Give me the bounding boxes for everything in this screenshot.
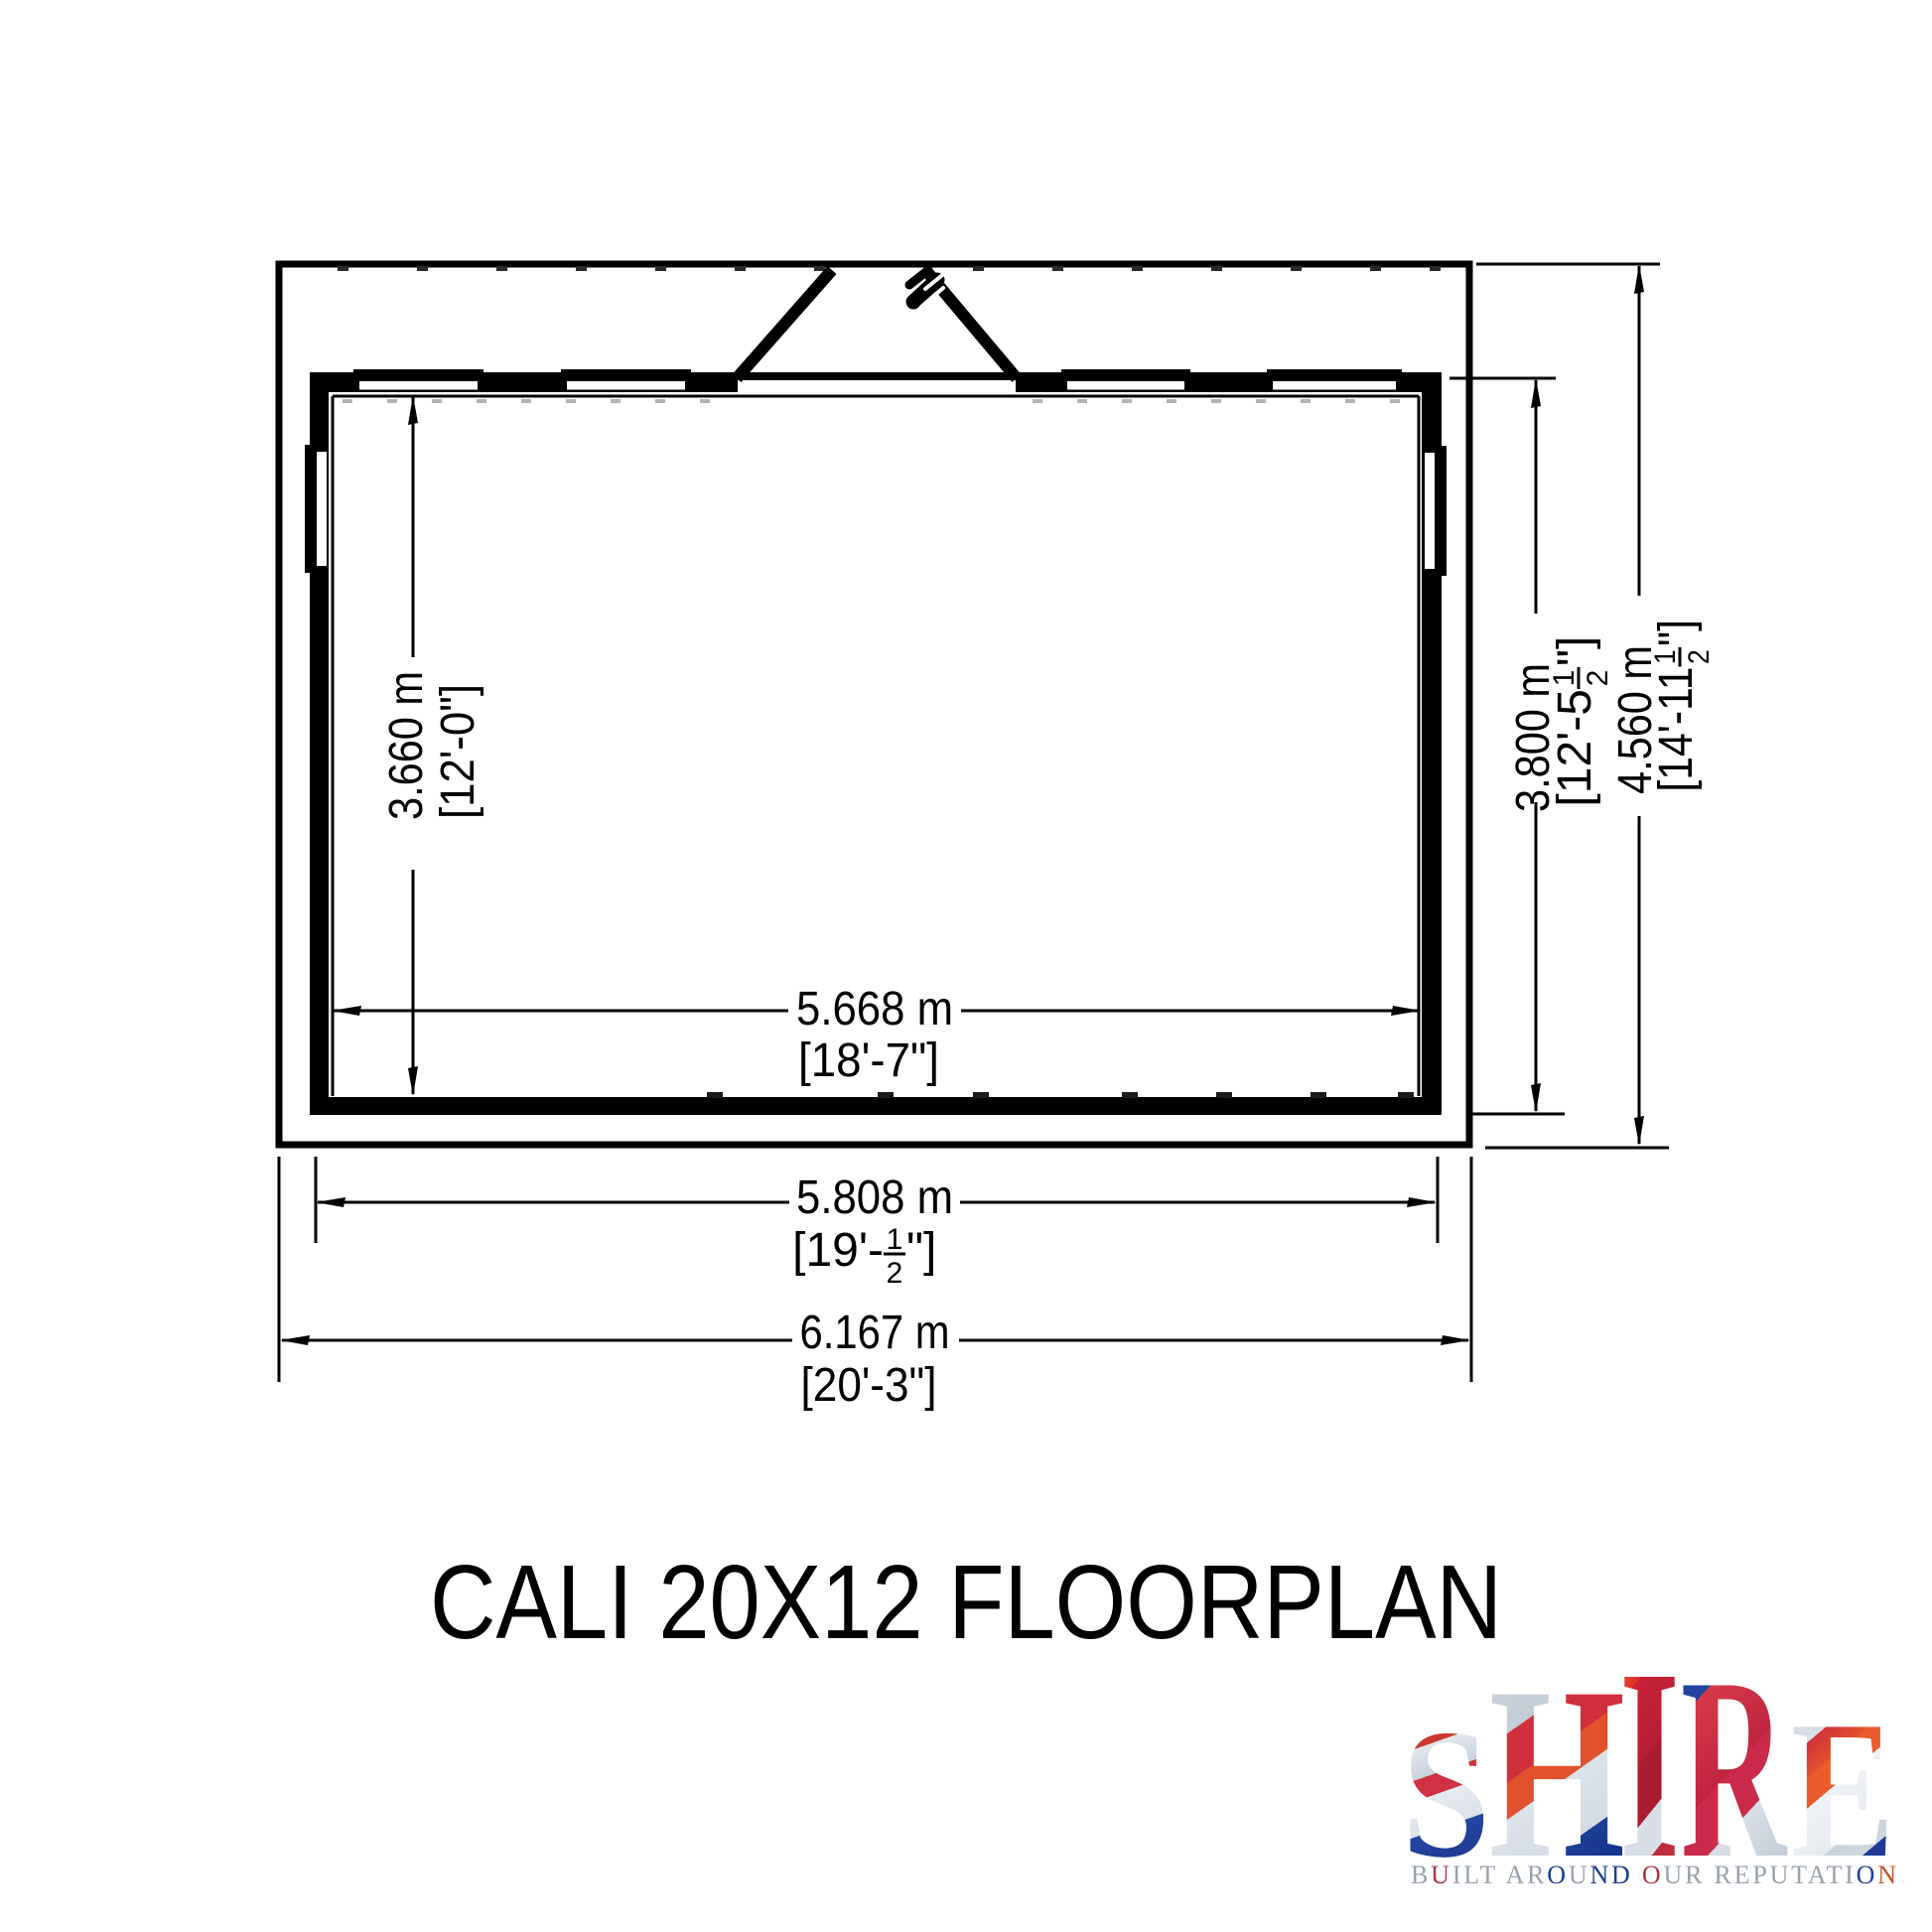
svg-text:CALI 20X12 FLOORPLAN: CALI 20X12 FLOORPLAN xyxy=(430,1544,1502,1661)
svg-text:1: 1 xyxy=(1548,670,1581,687)
svg-text:[18'-7"]: [18'-7"] xyxy=(798,1035,939,1087)
svg-text:1: 1 xyxy=(887,1223,903,1256)
svg-text:1: 1 xyxy=(1649,649,1683,664)
svg-text:"]: "] xyxy=(1649,620,1703,646)
svg-text:[14'-11: [14'-11 xyxy=(1649,667,1703,792)
svg-text:2: 2 xyxy=(1683,649,1717,664)
svg-text:3.660 m: 3.660 m xyxy=(380,671,433,820)
svg-text:5.668 m: 5.668 m xyxy=(796,983,953,1035)
svg-text:"]: "] xyxy=(1549,636,1601,666)
svg-text:[12'-0"]: [12'-0"] xyxy=(432,684,484,819)
svg-text:[19'-: [19'- xyxy=(792,1224,884,1277)
svg-text:[20'-3"]: [20'-3"] xyxy=(801,1359,937,1412)
svg-text:5.808 m: 5.808 m xyxy=(796,1172,953,1224)
svg-text:"]: "] xyxy=(906,1224,936,1277)
svg-text:2: 2 xyxy=(887,1257,903,1290)
svg-text:6.167 m: 6.167 m xyxy=(800,1307,950,1359)
svg-text:[12'-5: [12'-5 xyxy=(1549,689,1601,807)
